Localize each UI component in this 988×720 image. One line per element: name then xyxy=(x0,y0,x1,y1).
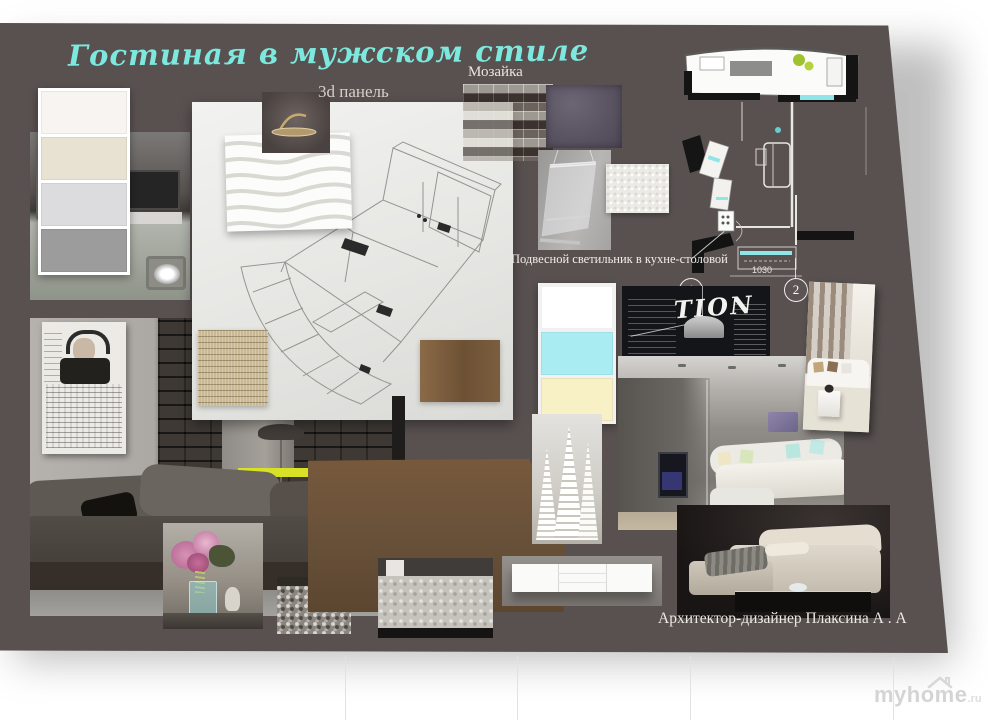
fold-line-3 xyxy=(690,656,691,720)
sofa-pillow-dots xyxy=(841,363,851,373)
photo-shaggy-carpet xyxy=(378,558,493,638)
plan-dimension-label: 1030 xyxy=(752,265,772,275)
sample-stucco-texture xyxy=(606,164,669,213)
figurine xyxy=(225,587,240,611)
cube-table xyxy=(817,390,840,417)
poster-text-lines xyxy=(46,384,122,448)
render-pillow-3 xyxy=(785,443,800,458)
flower-leaves xyxy=(209,545,235,567)
ceiling-spot-2 xyxy=(728,366,736,369)
table-surface xyxy=(163,613,263,629)
sample-dark-stone-tile xyxy=(546,85,622,148)
poster-graffiti-art xyxy=(42,322,126,454)
carpet-room-door xyxy=(386,560,404,576)
label-pendant-light-text: Подвесной светильник в кухне-столовой xyxy=(511,252,728,266)
designer-signature-text: Архитектор-дизайнер Плаксина А . А xyxy=(658,610,907,627)
flower-bloom-3 xyxy=(187,553,209,573)
moodboard-page: 1030 1 2 TION xyxy=(0,0,988,720)
glass-coffee-table xyxy=(735,591,871,612)
carpet-bottom-edge xyxy=(378,628,493,638)
label-mosaic: Мозайка xyxy=(468,64,523,81)
label-3d-panel: 3d панель xyxy=(318,82,389,102)
spotlight-lens xyxy=(154,264,180,284)
dome-lamp-shade xyxy=(684,316,724,338)
photo-chalkboard-wall: TION xyxy=(622,286,770,367)
sample-wood-veneer xyxy=(420,340,500,402)
dome-lamp-wire xyxy=(702,286,703,318)
sideboard-drawer-line-2 xyxy=(558,582,606,583)
sofa-pillow-tan xyxy=(813,362,824,373)
palette-accent-swatch-2 xyxy=(541,332,613,375)
photo-pendant-lamp xyxy=(538,150,611,250)
render-pillow-1 xyxy=(717,451,732,466)
palette-accent xyxy=(538,283,616,424)
vase-right xyxy=(576,442,600,540)
sample-fabric-weave xyxy=(198,330,268,406)
sideboard-body xyxy=(512,564,652,592)
watermark: myhome.ru xyxy=(874,682,986,718)
photo-white-living-room xyxy=(803,282,875,433)
plan-marker-2: 2 xyxy=(784,278,808,302)
glass-vase xyxy=(189,581,217,615)
sofa-pillow-brown xyxy=(827,361,838,372)
floor-lamp-shade xyxy=(258,424,304,440)
glass-bowl xyxy=(789,583,807,592)
palette-main xyxy=(38,88,130,275)
photo-spiral-vases xyxy=(532,414,602,544)
sideboard-divider-2 xyxy=(606,564,607,592)
watermark-suffix: .ru xyxy=(967,693,981,705)
designer-signature: Архитектор-дизайнер Плаксина А . А xyxy=(658,610,907,628)
palette-main-swatch-3 xyxy=(41,183,127,226)
ceiling-spot-1 xyxy=(678,364,686,367)
palette-accent-swatch-1 xyxy=(541,286,613,329)
home-icon xyxy=(926,675,956,689)
render-tv-glow xyxy=(662,472,682,490)
fold-line-1 xyxy=(345,656,346,720)
fold-line-2 xyxy=(517,656,518,720)
photo-white-sideboard xyxy=(502,556,662,606)
poster-body xyxy=(60,358,110,384)
marker-connector-2 xyxy=(795,258,796,278)
label-mosaic-text: Мозайка xyxy=(468,64,523,80)
photo-cream-sofa xyxy=(677,505,890,618)
render-pillow-2 xyxy=(739,449,753,463)
poster-side-lines xyxy=(44,330,62,382)
render-pillow-4 xyxy=(809,439,825,455)
palette-main-swatch-2 xyxy=(41,137,127,180)
plan-marker-2-label: 2 xyxy=(793,282,800,297)
sideboard-drawer-line-1 xyxy=(558,573,606,574)
sideboard-divider-1 xyxy=(558,564,559,592)
photo-flowers-vase xyxy=(163,523,263,629)
pendant-lamp-shape xyxy=(538,150,611,250)
label-pendant-light: Подвесной светильник в кухне-столовой xyxy=(511,252,728,267)
cabinet-shape xyxy=(130,212,182,224)
wall-art-blur xyxy=(768,412,798,432)
ceiling-spot-3 xyxy=(778,364,786,367)
palette-main-swatch-1 xyxy=(41,91,127,134)
palette-main-swatch-4 xyxy=(41,229,127,272)
label-3d-panel-text: 3d панель xyxy=(318,82,389,101)
